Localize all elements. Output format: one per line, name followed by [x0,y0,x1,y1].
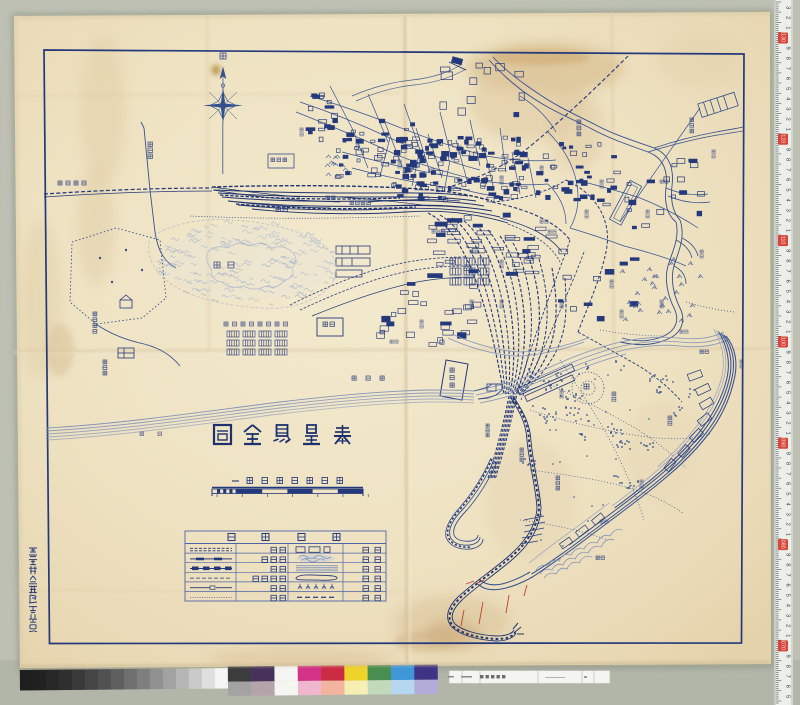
svg-text:6: 6 [785,178,791,181]
svg-text:3: 3 [785,411,791,414]
svg-text:5: 5 [785,594,791,597]
svg-text:5: 5 [785,290,791,293]
svg-text:1: 1 [785,634,791,637]
svg-text:7: 7 [785,573,791,576]
svg-text:7: 7 [785,67,791,70]
svg-text:100: 100 [780,337,786,346]
svg-text:070: 070 [780,641,786,650]
svg-text:5: 5 [785,188,791,191]
svg-text:5: 5 [785,492,791,495]
svg-text:1: 1 [785,330,791,333]
svg-text:1: 1 [785,431,791,434]
svg-text:2: 2 [785,523,791,526]
svg-text:1: 1 [785,128,791,131]
svg-text:3: 3 [785,310,791,313]
svg-text:8: 8 [785,259,791,262]
svg-text:120: 120 [780,134,786,143]
svg-text:3: 3 [785,6,791,9]
svg-text:6: 6 [785,280,791,283]
svg-text:3: 3 [785,107,791,110]
svg-text:1: 1 [785,26,791,29]
svg-text:2: 2 [785,117,791,120]
svg-text:7: 7 [785,472,791,475]
svg-text:3: 3 [785,513,791,516]
svg-text:5: 5 [785,695,791,698]
svg-text:130: 130 [780,33,786,42]
svg-text:6: 6 [785,685,791,688]
svg-text:080: 080 [780,540,786,549]
svg-text:8: 8 [785,361,791,364]
svg-text:3: 3 [785,209,791,212]
svg-text:110: 110 [780,236,786,245]
svg-text:9: 9 [785,350,791,353]
svg-text:3: 3 [785,614,791,617]
svg-text:9: 9 [785,46,791,49]
svg-text:1: 1 [785,229,791,232]
svg-text:2: 2 [785,219,791,222]
svg-text:9: 9 [785,148,791,151]
svg-text:5: 5 [785,391,791,394]
svg-text:2: 2 [785,421,791,424]
svg-text:9: 9 [785,452,791,455]
svg-text:090: 090 [780,438,786,447]
svg-text:8: 8 [785,158,791,161]
svg-text:7: 7 [785,269,791,272]
svg-text:1: 1 [785,533,791,536]
svg-text:7: 7 [785,371,791,374]
svg-text:8: 8 [785,665,791,668]
svg-text:9: 9 [785,654,791,657]
svg-text:8: 8 [785,563,791,566]
svg-text:2: 2 [785,320,791,323]
svg-text:8: 8 [785,57,791,60]
svg-text:5: 5 [785,87,791,90]
svg-text:6: 6 [785,381,791,384]
svg-text:9: 9 [785,249,791,252]
svg-text:2: 2 [785,16,791,19]
svg-text:2: 2 [785,624,791,627]
svg-text:7: 7 [785,675,791,678]
svg-text:7: 7 [785,168,791,171]
svg-text:8: 8 [785,462,791,465]
svg-text:6: 6 [785,482,791,485]
svg-text:6: 6 [785,583,791,586]
svg-text:9: 9 [785,553,791,556]
svg-text:6: 6 [785,77,791,80]
